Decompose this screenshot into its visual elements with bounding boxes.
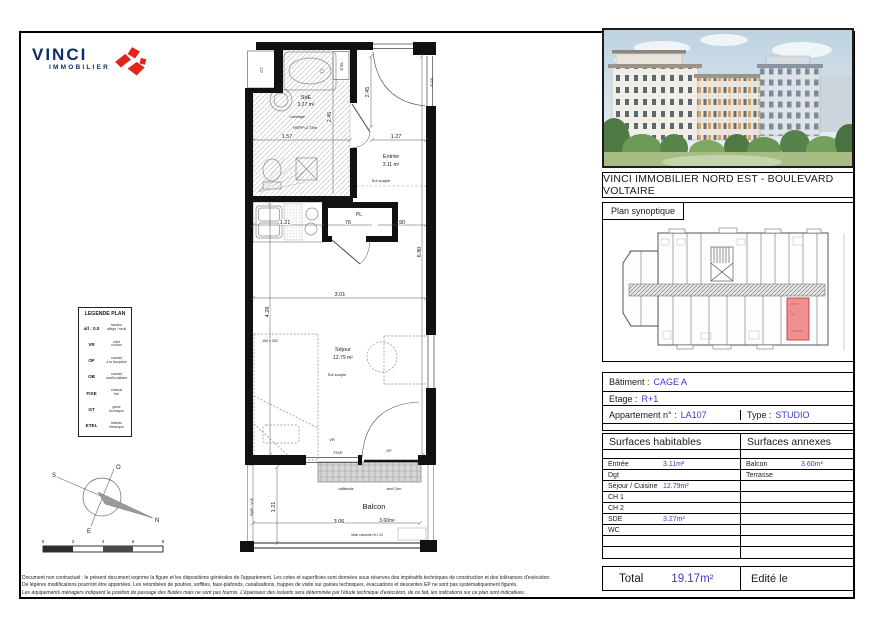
table-row bbox=[740, 536, 853, 547]
appartement-value: LA107 bbox=[681, 410, 707, 420]
legend-row: all : 0.0hauteur allège / seuil bbox=[80, 320, 130, 336]
scale-tick: 0 bbox=[42, 539, 45, 544]
surfaces-annexes-header: Surfaces annexes bbox=[740, 434, 853, 450]
table-row bbox=[603, 536, 740, 547]
appartement-cell: Appartement n° : LA107 bbox=[603, 410, 740, 420]
corridor bbox=[629, 284, 825, 296]
dim-1-57: 1.57 bbox=[282, 134, 293, 140]
vinci-logo-mark bbox=[114, 46, 148, 80]
of-label: OF bbox=[386, 448, 392, 453]
caillebotis-label: caillebotis bbox=[338, 487, 354, 491]
gt-label: GT bbox=[259, 67, 264, 73]
plan-synoptique-label: Plan synoptique bbox=[603, 203, 684, 220]
dim-3-01: 3.01 bbox=[335, 292, 346, 298]
floor-plan-drawing: GT ETEL SdE 3.27 m² Carrelage HSFP=2.75m… bbox=[238, 34, 456, 562]
sejour-room-label: Séjour bbox=[335, 347, 351, 353]
sol-souple-entree: Sol souple bbox=[372, 178, 391, 183]
plan-synoptique-box: Plan synoptique bbox=[602, 202, 854, 362]
table-row bbox=[740, 547, 853, 558]
total-row: Total 19.17m² Edité le bbox=[602, 566, 854, 591]
sol-souple-sejour: Sol souple bbox=[328, 372, 347, 377]
hsfp-label: HSFP=2.75m bbox=[293, 125, 318, 130]
table-row: CH 2 bbox=[603, 503, 740, 514]
project-title: VINCI IMMOBILIER NORD EST - BOULEVARD VO… bbox=[602, 172, 854, 198]
legend-title: LEGENDE PLAN bbox=[80, 311, 130, 317]
table-row bbox=[740, 514, 853, 525]
pl-closet-label: PL bbox=[356, 212, 362, 218]
scale-tick: 4 bbox=[102, 539, 105, 544]
compass-s: S bbox=[52, 473, 56, 479]
spacer-cell bbox=[603, 450, 740, 459]
etel-label: ETEL bbox=[340, 62, 344, 71]
table-row bbox=[740, 525, 853, 536]
table-row: Terrasse bbox=[740, 470, 853, 481]
vr-label: VR bbox=[329, 437, 335, 442]
seuil-label: seuil 2cm bbox=[387, 487, 402, 491]
disclaimer-line-2: De légères modifications pourront être a… bbox=[22, 582, 554, 589]
sde-room-label: SdE bbox=[301, 95, 312, 101]
compass-o: O bbox=[116, 465, 121, 471]
etage-value: R+1 bbox=[642, 394, 659, 404]
vinci-logo: VINCI IMMOBILIER bbox=[32, 46, 142, 90]
north-needle bbox=[98, 492, 153, 518]
scale-tick: 6 bbox=[132, 539, 135, 544]
scale-tick: 8 bbox=[162, 539, 165, 544]
dim-76: 76 bbox=[345, 220, 351, 226]
table-row bbox=[603, 547, 740, 558]
type-cell: Type : STUDIO bbox=[740, 410, 854, 420]
edited-cell: Edité le bbox=[740, 567, 854, 590]
legend-row: OFouvrant à la française bbox=[80, 353, 130, 369]
disclaimer-line-1: Document non contractuel : le présent do… bbox=[22, 575, 554, 582]
dim-6-80: 6.80 bbox=[417, 247, 423, 258]
building-render bbox=[604, 30, 852, 166]
sde-area-label: 3.27 m² bbox=[298, 102, 315, 108]
surfaces-habitables-header: Surfaces habitables bbox=[603, 434, 740, 450]
etage-row: Etage : R+1 bbox=[603, 392, 853, 406]
compass-and-scale: O S E N 0 2 4 6 8 bbox=[40, 460, 170, 558]
table-row bbox=[740, 481, 853, 492]
type-value: STUDIO bbox=[776, 410, 810, 420]
entry-door-spec: P.100 bbox=[430, 78, 434, 87]
batiment-row: Bâtiment : CAGE A bbox=[603, 373, 853, 392]
table-row bbox=[740, 503, 853, 514]
dim-2-45-bath: 2.45 bbox=[327, 112, 333, 123]
dim-1-21-balcon: 1.21 bbox=[271, 502, 277, 513]
dim-3-06: 3.06 bbox=[334, 519, 345, 525]
total-cell: Total 19.17m² bbox=[603, 567, 740, 590]
total-label: Total bbox=[619, 573, 643, 585]
plan-synoptique-drawing bbox=[603, 203, 853, 361]
apartment-info-table: Bâtiment : CAGE A Etage : R+1 Appartemen… bbox=[602, 372, 854, 431]
legend-row: OBouvrant oscillo-battant bbox=[80, 369, 130, 385]
legend-row: VRvolet roulant bbox=[80, 336, 130, 352]
legend-row: ETELtableau électrique bbox=[80, 418, 130, 434]
plan-legend: LEGENDE PLAN all : 0.0hauteur allège / s… bbox=[78, 307, 132, 437]
spacer-cell bbox=[740, 450, 853, 459]
entree-room-label: Entrée bbox=[383, 154, 399, 160]
legend-row: FIXEchassis fixe bbox=[80, 385, 130, 401]
compass-rose bbox=[57, 469, 153, 526]
pare-vue-label: PARE - VUE bbox=[250, 498, 254, 516]
table-row: WC bbox=[603, 525, 740, 536]
compass-e: E bbox=[87, 529, 91, 535]
main-courante-label: Main courante Ht 1.10 bbox=[351, 533, 383, 537]
balcon-area-label: 3.60m² bbox=[379, 518, 395, 524]
floor-plan-sheet: { "logo": {"brand": "VINCI", "division":… bbox=[0, 0, 876, 620]
table-row: CH 1 bbox=[603, 492, 740, 503]
table-row bbox=[740, 492, 853, 503]
vinci-logo-division: IMMOBILIER bbox=[32, 64, 110, 71]
scale-tick: 2 bbox=[72, 539, 75, 544]
carrelage-label: Carrelage bbox=[289, 115, 304, 119]
compass-n: N bbox=[155, 518, 159, 524]
disclaimer: Document non contractuel : le présent do… bbox=[22, 575, 554, 597]
batiment-value: CAGE A bbox=[654, 377, 688, 387]
dim-90: 90 bbox=[399, 220, 405, 226]
table-row: Entrée3.11m² bbox=[603, 459, 740, 470]
table-row: Dgt bbox=[603, 470, 740, 481]
dim-4-28: 4.28 bbox=[265, 307, 271, 318]
table-row: SDE3.27m² bbox=[603, 514, 740, 525]
total-value: 19.17m² bbox=[671, 573, 713, 585]
balcon-room-label: Balcon bbox=[363, 502, 386, 511]
stair-core bbox=[711, 247, 733, 281]
surfaces-table: Surfaces habitables Surfaces annexes Ent… bbox=[602, 433, 854, 559]
dim-1-21-kitchen: 1.21 bbox=[280, 220, 291, 226]
highlighted-unit-la107 bbox=[787, 298, 809, 340]
building-photo bbox=[602, 28, 854, 168]
dim-1-27: 1.27 bbox=[391, 134, 402, 140]
sejour-area-label: 12.79 m² bbox=[333, 355, 353, 361]
bed bbox=[254, 334, 318, 460]
fixe-label: FIXE bbox=[334, 450, 343, 455]
table bbox=[367, 336, 426, 384]
entree-area-label: 3.11 m² bbox=[383, 162, 400, 168]
appartement-row: Appartement n° : LA107 Type : STUDIO bbox=[603, 406, 853, 424]
table-row: Balcon3.60m² bbox=[740, 459, 853, 470]
table-row: Séjour / Cuisine12.79m² bbox=[603, 481, 740, 492]
dim-2-45-entry: 2.45 bbox=[365, 87, 371, 98]
legend-row: GTgaine technique bbox=[80, 401, 130, 417]
disclaimer-line-3: Les équipements ménagers indiquent la po… bbox=[22, 590, 554, 597]
bed-size-label: 180 x 200 bbox=[262, 339, 277, 343]
scale-bar: 0 2 4 6 8 bbox=[42, 539, 165, 552]
